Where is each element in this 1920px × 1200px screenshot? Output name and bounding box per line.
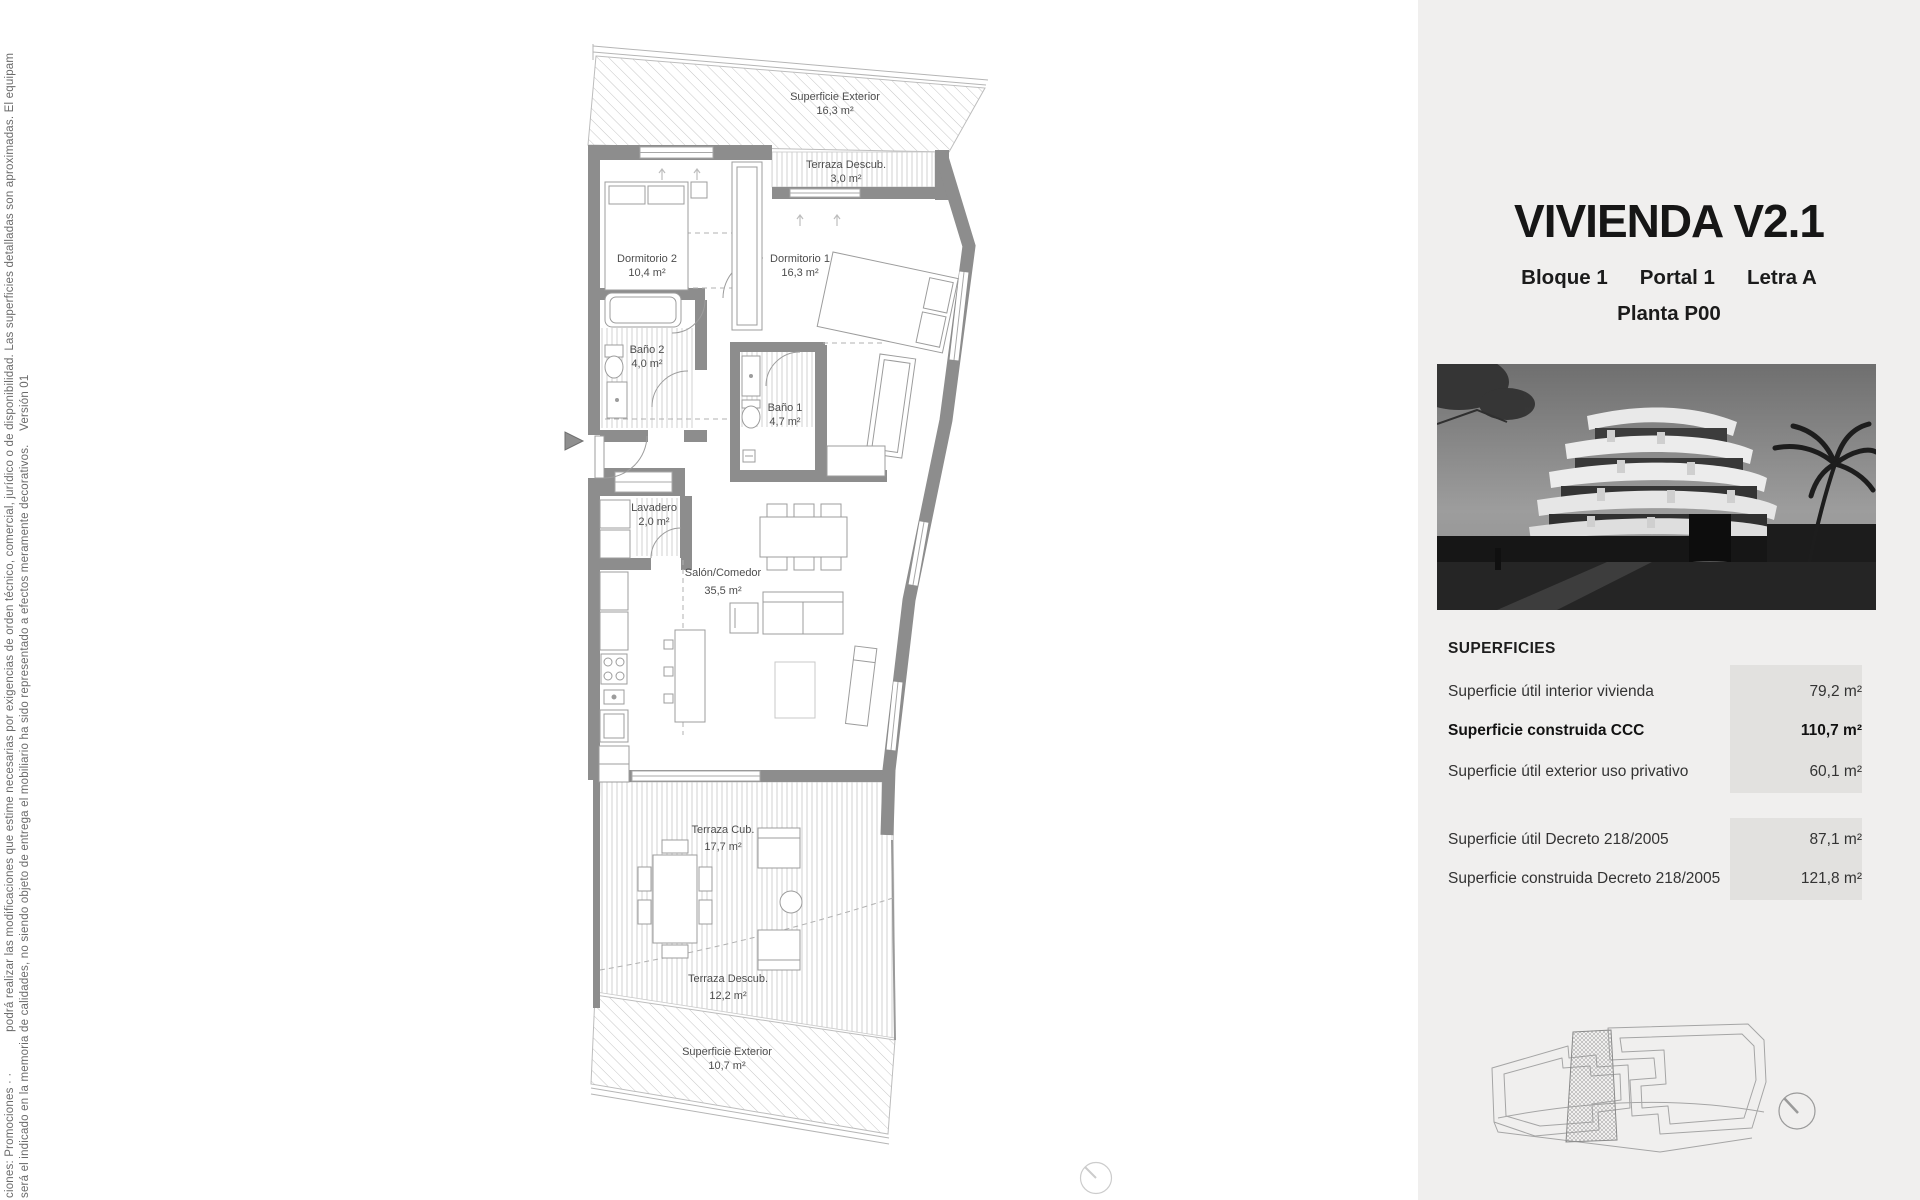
label-lavadero-area: 2,0 m² <box>638 516 670 528</box>
label-superficie-exterior-bottom: Superficie Exterior <box>682 1046 772 1058</box>
label-terraza-descub-bottom: Terraza Descub. <box>688 973 768 985</box>
label-dormitorio-2-area: 10,4 m² <box>628 267 666 279</box>
compass-icon <box>1779 1093 1815 1129</box>
row-value: 121,8 m² <box>1730 870 1878 888</box>
site-key-plan <box>1480 1020 1840 1180</box>
label-dormitorio-1: Dormitorio 1 <box>770 253 830 265</box>
disclaimer-line-2: será el indicado en la memoria de calida… <box>19 375 31 1199</box>
superficies-heading: SUPERFICIES <box>1448 640 1556 658</box>
row-value: 79,2 m² <box>1730 683 1878 701</box>
right-wall <box>887 154 969 835</box>
label-bano-1: Baño 1 <box>768 402 803 414</box>
label-terraza-cub-area: 17,7 m² <box>704 841 742 853</box>
table-row: Superficie útil exterior uso privativo 6… <box>1448 763 1890 783</box>
label-terraza-cub: Terraza Cub. <box>692 824 755 836</box>
subtitle-letra: Letra A <box>1747 266 1817 290</box>
row-label: Superficie construida CCC <box>1448 722 1644 740</box>
table-row: Superficie útil interior vivienda 79,2 m… <box>1448 683 1890 703</box>
label-dormitorio-2: Dormitorio 2 <box>617 253 677 265</box>
table-row: Superficie construida CCC 110,7 m² <box>1448 722 1890 742</box>
row-label: Superficie útil exterior uso privativo <box>1448 763 1688 781</box>
floor-plan: Superficie Exterior 16,3 m² Terraza Desc… <box>455 40 1015 1165</box>
table-row: Superficie construida Decreto 218/2005 1… <box>1448 870 1890 890</box>
row-value: 87,1 m² <box>1730 831 1878 849</box>
unit-title: VIVIENDA V2.1 <box>1418 194 1920 248</box>
label-bano-1-area: 4,7 m² <box>769 416 801 428</box>
area-superficie-exterior-top <box>588 56 985 152</box>
disclaimer-line-1: ciones: Promociones · · podrá realizar l… <box>4 53 16 1198</box>
unit-subtitle: Bloque 1 Portal 1 Letra A <box>1418 266 1920 290</box>
table-row: Superficie útil Decreto 218/2005 87,1 m² <box>1448 831 1890 851</box>
label-dormitorio-1-area: 16,3 m² <box>781 267 819 279</box>
row-label: Superficie útil Decreto 218/2005 <box>1448 831 1669 849</box>
unit-highlight <box>1566 1030 1617 1142</box>
label-terraza-descub-bottom-area: 12,2 m² <box>709 990 747 1002</box>
subtitle-planta: Planta P00 <box>1418 302 1920 326</box>
label-terraza-descub-top-area: 3,0 m² <box>830 173 862 185</box>
label-bano-2: Baño 2 <box>630 344 665 356</box>
building-render-image <box>1437 364 1876 610</box>
row-label: Superficie útil interior vivienda <box>1448 683 1654 701</box>
label-bano-2-area: 4,0 m² <box>631 358 663 370</box>
subtitle-bloque: Bloque 1 <box>1521 266 1608 290</box>
label-salon-comedor-area: 35,5 m² <box>704 585 742 597</box>
label-superficie-exterior-bottom-area: 10,7 m² <box>708 1060 746 1072</box>
subtitle-portal: Portal 1 <box>1640 266 1715 290</box>
label-superficie-exterior-top-area: 16,3 m² <box>816 105 854 117</box>
row-value: 60,1 m² <box>1730 763 1878 781</box>
label-terraza-descub-top: Terraza Descub. <box>806 159 886 171</box>
label-lavadero: Lavadero <box>631 502 677 514</box>
row-label: Superficie construida Decreto 218/2005 <box>1448 870 1720 888</box>
entry-arrow-icon <box>565 432 583 450</box>
row-value: 110,7 m² <box>1730 722 1878 740</box>
label-superficie-exterior-top: Superficie Exterior <box>790 91 880 103</box>
compass-icon-bottom <box>1077 1159 1115 1197</box>
label-salon-comedor: Salón/Comedor <box>685 567 762 579</box>
